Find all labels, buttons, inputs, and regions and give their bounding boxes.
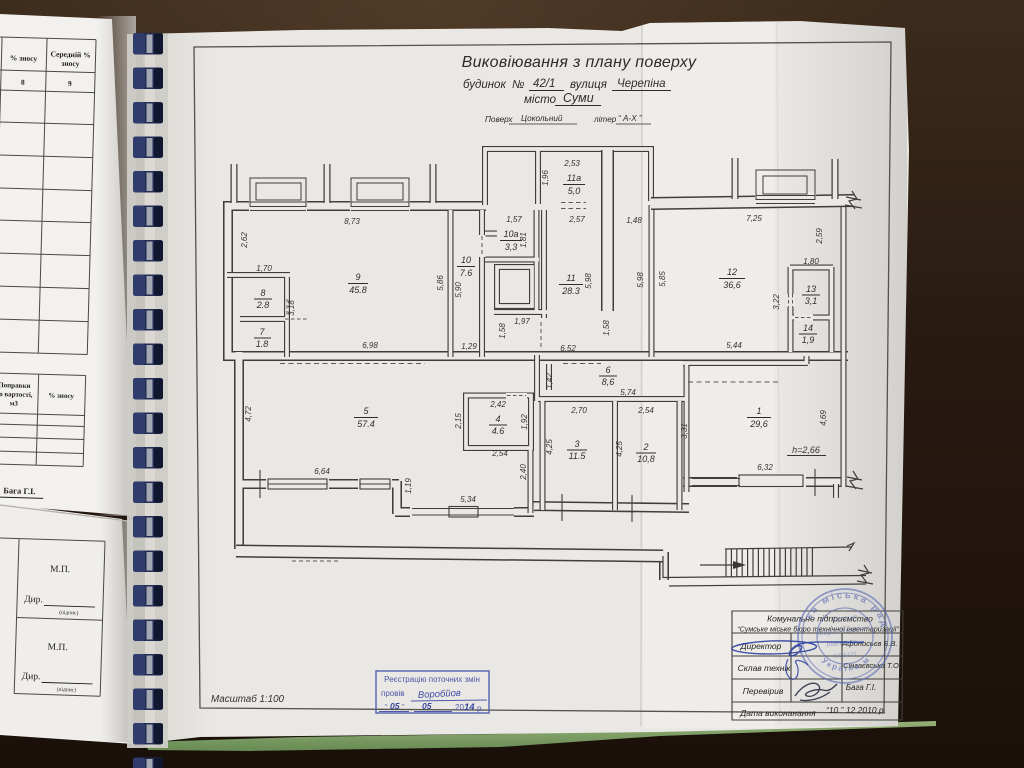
- svg-text:1,19: 1,19: [404, 478, 413, 494]
- svg-text:1,70: 1,70: [256, 264, 272, 273]
- svg-text:Поправки: Поправки: [0, 381, 31, 390]
- svg-text:Цокольний: Цокольний: [521, 114, 563, 123]
- svg-text:6,52: 6,52: [560, 344, 576, 353]
- svg-text:2,62: 2,62: [240, 232, 249, 249]
- svg-text:2,70: 2,70: [570, 406, 587, 415]
- svg-text:Склав технік: Склав технік: [738, 663, 792, 673]
- svg-text:Черепіна: Черепіна: [617, 78, 666, 90]
- svg-text:10,8: 10,8: [637, 454, 655, 464]
- svg-text:29,6: 29,6: [749, 419, 768, 429]
- svg-text:42/1: 42/1: [533, 78, 555, 90]
- svg-text:5,90: 5,90: [454, 282, 463, 298]
- svg-text:1.8: 1.8: [256, 339, 269, 349]
- svg-text:“10 ” 12 2010 р.: “10 ” 12 2010 р.: [826, 705, 886, 715]
- svg-text:М.П.: М.П.: [50, 565, 70, 576]
- svg-text:2: 2: [642, 442, 648, 452]
- svg-text:Дир.: Дир.: [22, 672, 41, 683]
- svg-text:4,25: 4,25: [545, 439, 554, 455]
- svg-text:1,57: 1,57: [506, 215, 522, 224]
- svg-text:8,6: 8,6: [602, 377, 615, 387]
- svg-text:8: 8: [21, 78, 25, 87]
- svg-text:7.6: 7.6: [460, 268, 473, 278]
- svg-text:57.4: 57.4: [357, 419, 375, 429]
- svg-text:1,96: 1,96: [541, 170, 550, 186]
- svg-text:2,42: 2,42: [489, 400, 506, 409]
- svg-text:3,22: 3,22: [772, 294, 781, 310]
- svg-text:Масштаб 1:100: Масштаб 1:100: [211, 694, 285, 705]
- svg-text:Перевірив: Перевірив: [743, 686, 784, 696]
- svg-text:1,92: 1,92: [520, 414, 529, 430]
- svg-text:6: 6: [605, 365, 610, 375]
- svg-text:4,25: 4,25: [615, 441, 624, 457]
- svg-text:1,9: 1,9: [802, 335, 815, 345]
- svg-text:1,29: 1,29: [461, 342, 477, 351]
- svg-text:05: 05: [390, 701, 400, 711]
- svg-text:Поверх: Поверх: [485, 115, 513, 124]
- svg-text:8,73: 8,73: [344, 217, 360, 226]
- svg-text:4,69: 4,69: [819, 410, 828, 426]
- svg-text:Реєстрацію поточних змін: Реєстрацію поточних змін: [384, 675, 480, 684]
- svg-text:літер: літер: [593, 115, 617, 124]
- svg-text:М.П.: М.П.: [47, 643, 67, 654]
- svg-text:2.8: 2.8: [256, 300, 270, 310]
- svg-text:5,44: 5,44: [726, 341, 742, 350]
- svg-text:11а: 11а: [567, 173, 581, 183]
- svg-text:2,15: 2,15: [454, 413, 463, 430]
- svg-text:місто: місто: [524, 94, 557, 106]
- svg-text:“ А-Х ”: “ А-Х ”: [618, 114, 643, 123]
- svg-text:до вартості,: до вартості,: [0, 390, 33, 399]
- svg-text:зносу: зносу: [61, 59, 80, 69]
- svg-text:4: 4: [495, 414, 500, 424]
- svg-text:6,32: 6,32: [757, 463, 773, 472]
- svg-text:Виковіювання з плану поверху: Виковіювання з плану поверху: [462, 54, 697, 71]
- svg-text:1,81: 1,81: [519, 232, 528, 248]
- svg-text:Суми: Суми: [563, 91, 594, 105]
- svg-text:Бага Г.І.: Бага Г.І.: [846, 683, 876, 692]
- svg-text:Директор: Директор: [740, 641, 782, 651]
- svg-text:1,97: 1,97: [514, 317, 530, 326]
- svg-text:45.8: 45.8: [349, 285, 367, 295]
- svg-text:14: 14: [803, 323, 813, 333]
- svg-text:м3: м3: [10, 399, 19, 407]
- svg-text:3,18: 3,18: [287, 300, 296, 316]
- svg-text:5,0: 5,0: [568, 186, 581, 196]
- svg-text:5,98: 5,98: [584, 273, 593, 289]
- svg-text:h=2,66: h=2,66: [792, 445, 820, 455]
- svg-text:(підпис): (підпис): [59, 609, 79, 617]
- svg-text:Дир.: Дир.: [24, 595, 43, 606]
- svg-text:2,40: 2,40: [519, 464, 528, 481]
- svg-text:будинок: будинок: [463, 79, 506, 91]
- svg-text:2,57: 2,57: [568, 215, 585, 224]
- svg-text:6,64: 6,64: [314, 467, 330, 476]
- svg-text:1,58: 1,58: [602, 320, 611, 336]
- svg-text:(підпис): (підпис): [57, 686, 77, 694]
- svg-text:13: 13: [806, 284, 816, 294]
- svg-text:1,42: 1,42: [545, 373, 554, 389]
- svg-text:% зносу: % зносу: [48, 391, 74, 400]
- svg-text:11.5: 11.5: [569, 451, 587, 461]
- svg-text:провів: провів: [381, 689, 405, 698]
- svg-text:2,53: 2,53: [563, 159, 580, 168]
- svg-text:вулиця: вулиця: [570, 79, 607, 91]
- svg-text:1: 1: [756, 406, 761, 416]
- svg-text:3,31: 3,31: [680, 423, 689, 439]
- svg-text:5,85: 5,85: [658, 271, 667, 287]
- svg-text:1,80: 1,80: [803, 257, 819, 266]
- svg-text:3,1: 3,1: [805, 296, 818, 306]
- svg-text:28.3: 28.3: [561, 286, 580, 296]
- svg-text:4,72: 4,72: [244, 406, 253, 422]
- svg-text:Воробйов: Воробйов: [418, 688, 462, 701]
- svg-text:2,54: 2,54: [491, 449, 508, 458]
- svg-text:8: 8: [260, 288, 265, 298]
- svg-text:9: 9: [355, 272, 360, 282]
- svg-text:5,34: 5,34: [460, 495, 476, 504]
- svg-text:1,58: 1,58: [498, 323, 507, 339]
- svg-text:№: №: [512, 79, 525, 91]
- svg-text:р.: р.: [477, 704, 484, 713]
- svg-text:Бага Г.І.: Бага Г.І.: [3, 485, 35, 496]
- svg-text:2,54: 2,54: [637, 406, 654, 415]
- svg-text:3: 3: [574, 439, 579, 449]
- svg-text:6,98: 6,98: [362, 341, 378, 350]
- svg-text:7,25: 7,25: [746, 214, 762, 223]
- svg-text:1,48: 1,48: [626, 216, 642, 225]
- svg-text:05: 05: [422, 701, 432, 711]
- svg-text:% зносу: % зносу: [10, 53, 38, 63]
- svg-text:12: 12: [727, 267, 737, 277]
- svg-text:4.6: 4.6: [492, 426, 505, 436]
- svg-text:5,98: 5,98: [636, 272, 645, 288]
- svg-text:10а: 10а: [503, 229, 518, 239]
- svg-text:14: 14: [464, 702, 475, 713]
- svg-text:36,6: 36,6: [723, 280, 741, 290]
- svg-text:Дата виконанання: Дата виконанання: [739, 708, 816, 718]
- svg-text:3,3: 3,3: [505, 242, 518, 252]
- svg-text:5,86: 5,86: [436, 275, 445, 291]
- svg-text:11: 11: [566, 273, 575, 283]
- svg-text:5,74: 5,74: [620, 388, 636, 397]
- svg-text:10: 10: [461, 255, 471, 265]
- svg-text:2,59: 2,59: [815, 228, 824, 245]
- svg-text:9: 9: [68, 79, 72, 88]
